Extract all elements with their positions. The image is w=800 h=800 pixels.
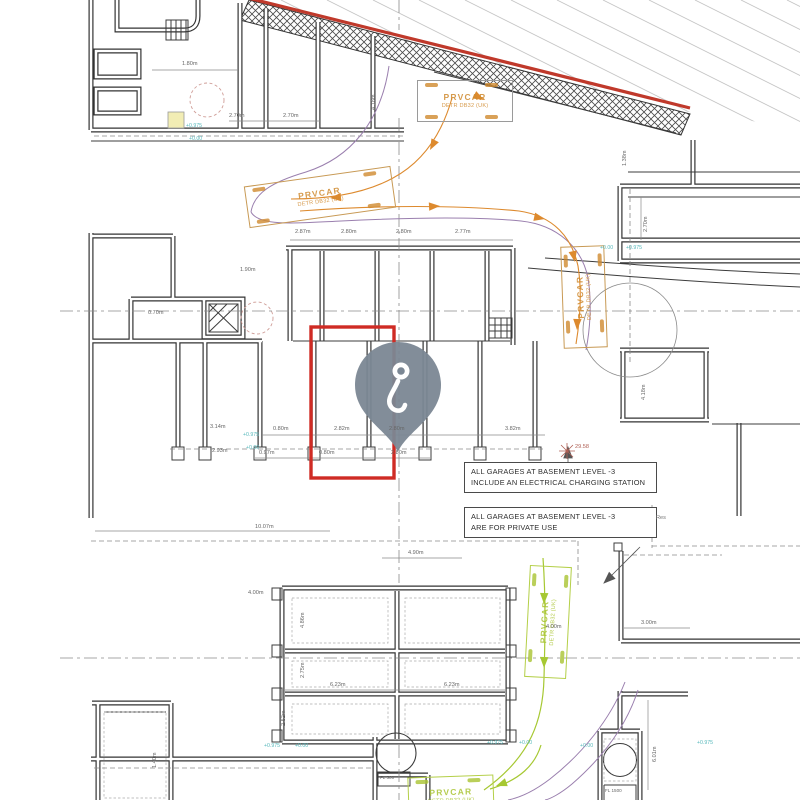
dimension-label: 2.80m [389, 426, 405, 432]
level-label: +0.975 [264, 743, 280, 749]
dimension-label: 1.80m [182, 61, 198, 67]
dimension-label: 6.23m [444, 682, 460, 688]
clearance-circle [241, 302, 273, 334]
note-line: ALL GARAGES AT BASEMENT LEVEL -3 [471, 512, 650, 523]
dimension-label: 2.75m [300, 662, 306, 678]
clearance-circle [190, 83, 224, 117]
dimension-label: 4.90m [408, 550, 424, 556]
dimension-label: 3.00m [641, 620, 657, 626]
dimension-label: 6.23m [330, 682, 346, 688]
dimension-label: 4.86m [300, 612, 306, 628]
dimension-label: 4.18m [371, 94, 377, 110]
car-stamp-subtitle: DETR DB32 (UK) [585, 273, 593, 320]
utility-zone [168, 112, 184, 128]
dimension-label: 4.00m [248, 590, 264, 596]
dimension-label: 1.40m [152, 752, 158, 768]
level-label: +0.00 [189, 136, 202, 142]
level-label: +0.00 [600, 245, 613, 251]
note-line: INCLUDE AN ELECTRICAL CHARGING STATION [471, 478, 650, 489]
dimension-label: 3.14m [210, 424, 226, 430]
note-line: ARE FOR PRIVATE USE [471, 523, 650, 534]
level-label: +0.975 [487, 740, 503, 746]
note-line: ALL GARAGES AT BASEMENT LEVEL -3 [471, 467, 650, 478]
note-box-private: ALL GARAGES AT BASEMENT LEVEL -3 ARE FOR… [464, 507, 657, 538]
survey-point-label: 29.58 [575, 444, 589, 450]
dimension-label: 2.93m [212, 448, 228, 454]
level-label: +0.975 [186, 123, 202, 129]
level-label: +0.975 [243, 432, 259, 438]
residential-label: Res [656, 515, 666, 521]
car-stamp-top: PRVCARDETR DB32 (UK) [417, 80, 513, 122]
dimension-label: 0.97m [259, 450, 275, 456]
dimension-label: 6.01m [652, 746, 658, 762]
dimension-label: 2.82m [334, 426, 350, 432]
equipment-label: FL 1500 [605, 788, 622, 793]
dimension-label: 4.18m [641, 384, 647, 400]
dimension-label: 2.52m [281, 710, 287, 726]
survey-point-marker [559, 443, 575, 459]
floorplan-linework [0, 0, 800, 800]
level-label: +0.00 [295, 743, 308, 749]
level-label: +0.00 [246, 445, 259, 451]
dimension-label: 2.80m [396, 229, 412, 235]
dimension-label: 2.77m [455, 229, 471, 235]
dimension-label: 2.70m [229, 113, 245, 119]
car-stamp-subtitle: DETR DB32 (UK) [442, 103, 489, 109]
equipment-label: FL 500 [380, 775, 394, 780]
dimension-label: 10.07m [255, 524, 274, 530]
car-stamp-title: PRVCAR [442, 93, 489, 103]
car-stamp-bottom: PRVCARDETR DB32 (UK) [407, 775, 494, 800]
dimension-label: 2.80m [341, 229, 357, 235]
car-stamp-right: PRVCARDETR DB32 (UK) [560, 245, 608, 348]
level-label: +0.00 [519, 740, 532, 746]
dimension-label: 1.90m [240, 267, 256, 273]
dimension-label: 0.80m [273, 426, 289, 432]
dimension-label: 2.80m [391, 450, 407, 456]
dimension-label: 2.87m [295, 229, 311, 235]
level-label: +0.975 [697, 740, 713, 746]
dimension-label: 1.38m [622, 150, 628, 166]
dimension-label: 4.00m [546, 624, 562, 630]
dimension-label: 0.80m [319, 450, 335, 456]
level-label: +0.00 [580, 743, 593, 749]
dimension-label: 2.70m [643, 216, 649, 232]
note-box-charging: ALL GARAGES AT BASEMENT LEVEL -3 INCLUDE… [464, 462, 657, 493]
car-stamp-lower: PRVCARDETR DB32 (UK) [524, 565, 572, 679]
dashed-lines [91, 136, 800, 768]
floorplan-canvas: PRVCARDETR DB32 (UK) PRVCARDETR DB32 (UK… [0, 0, 800, 800]
level-label: +0.975 [626, 245, 642, 251]
shaft-circle [604, 744, 637, 777]
dimension-label: 3.82m [505, 426, 521, 432]
dimension-label: 2.70m [283, 113, 299, 119]
dimension-label: 0.70m [148, 310, 164, 316]
